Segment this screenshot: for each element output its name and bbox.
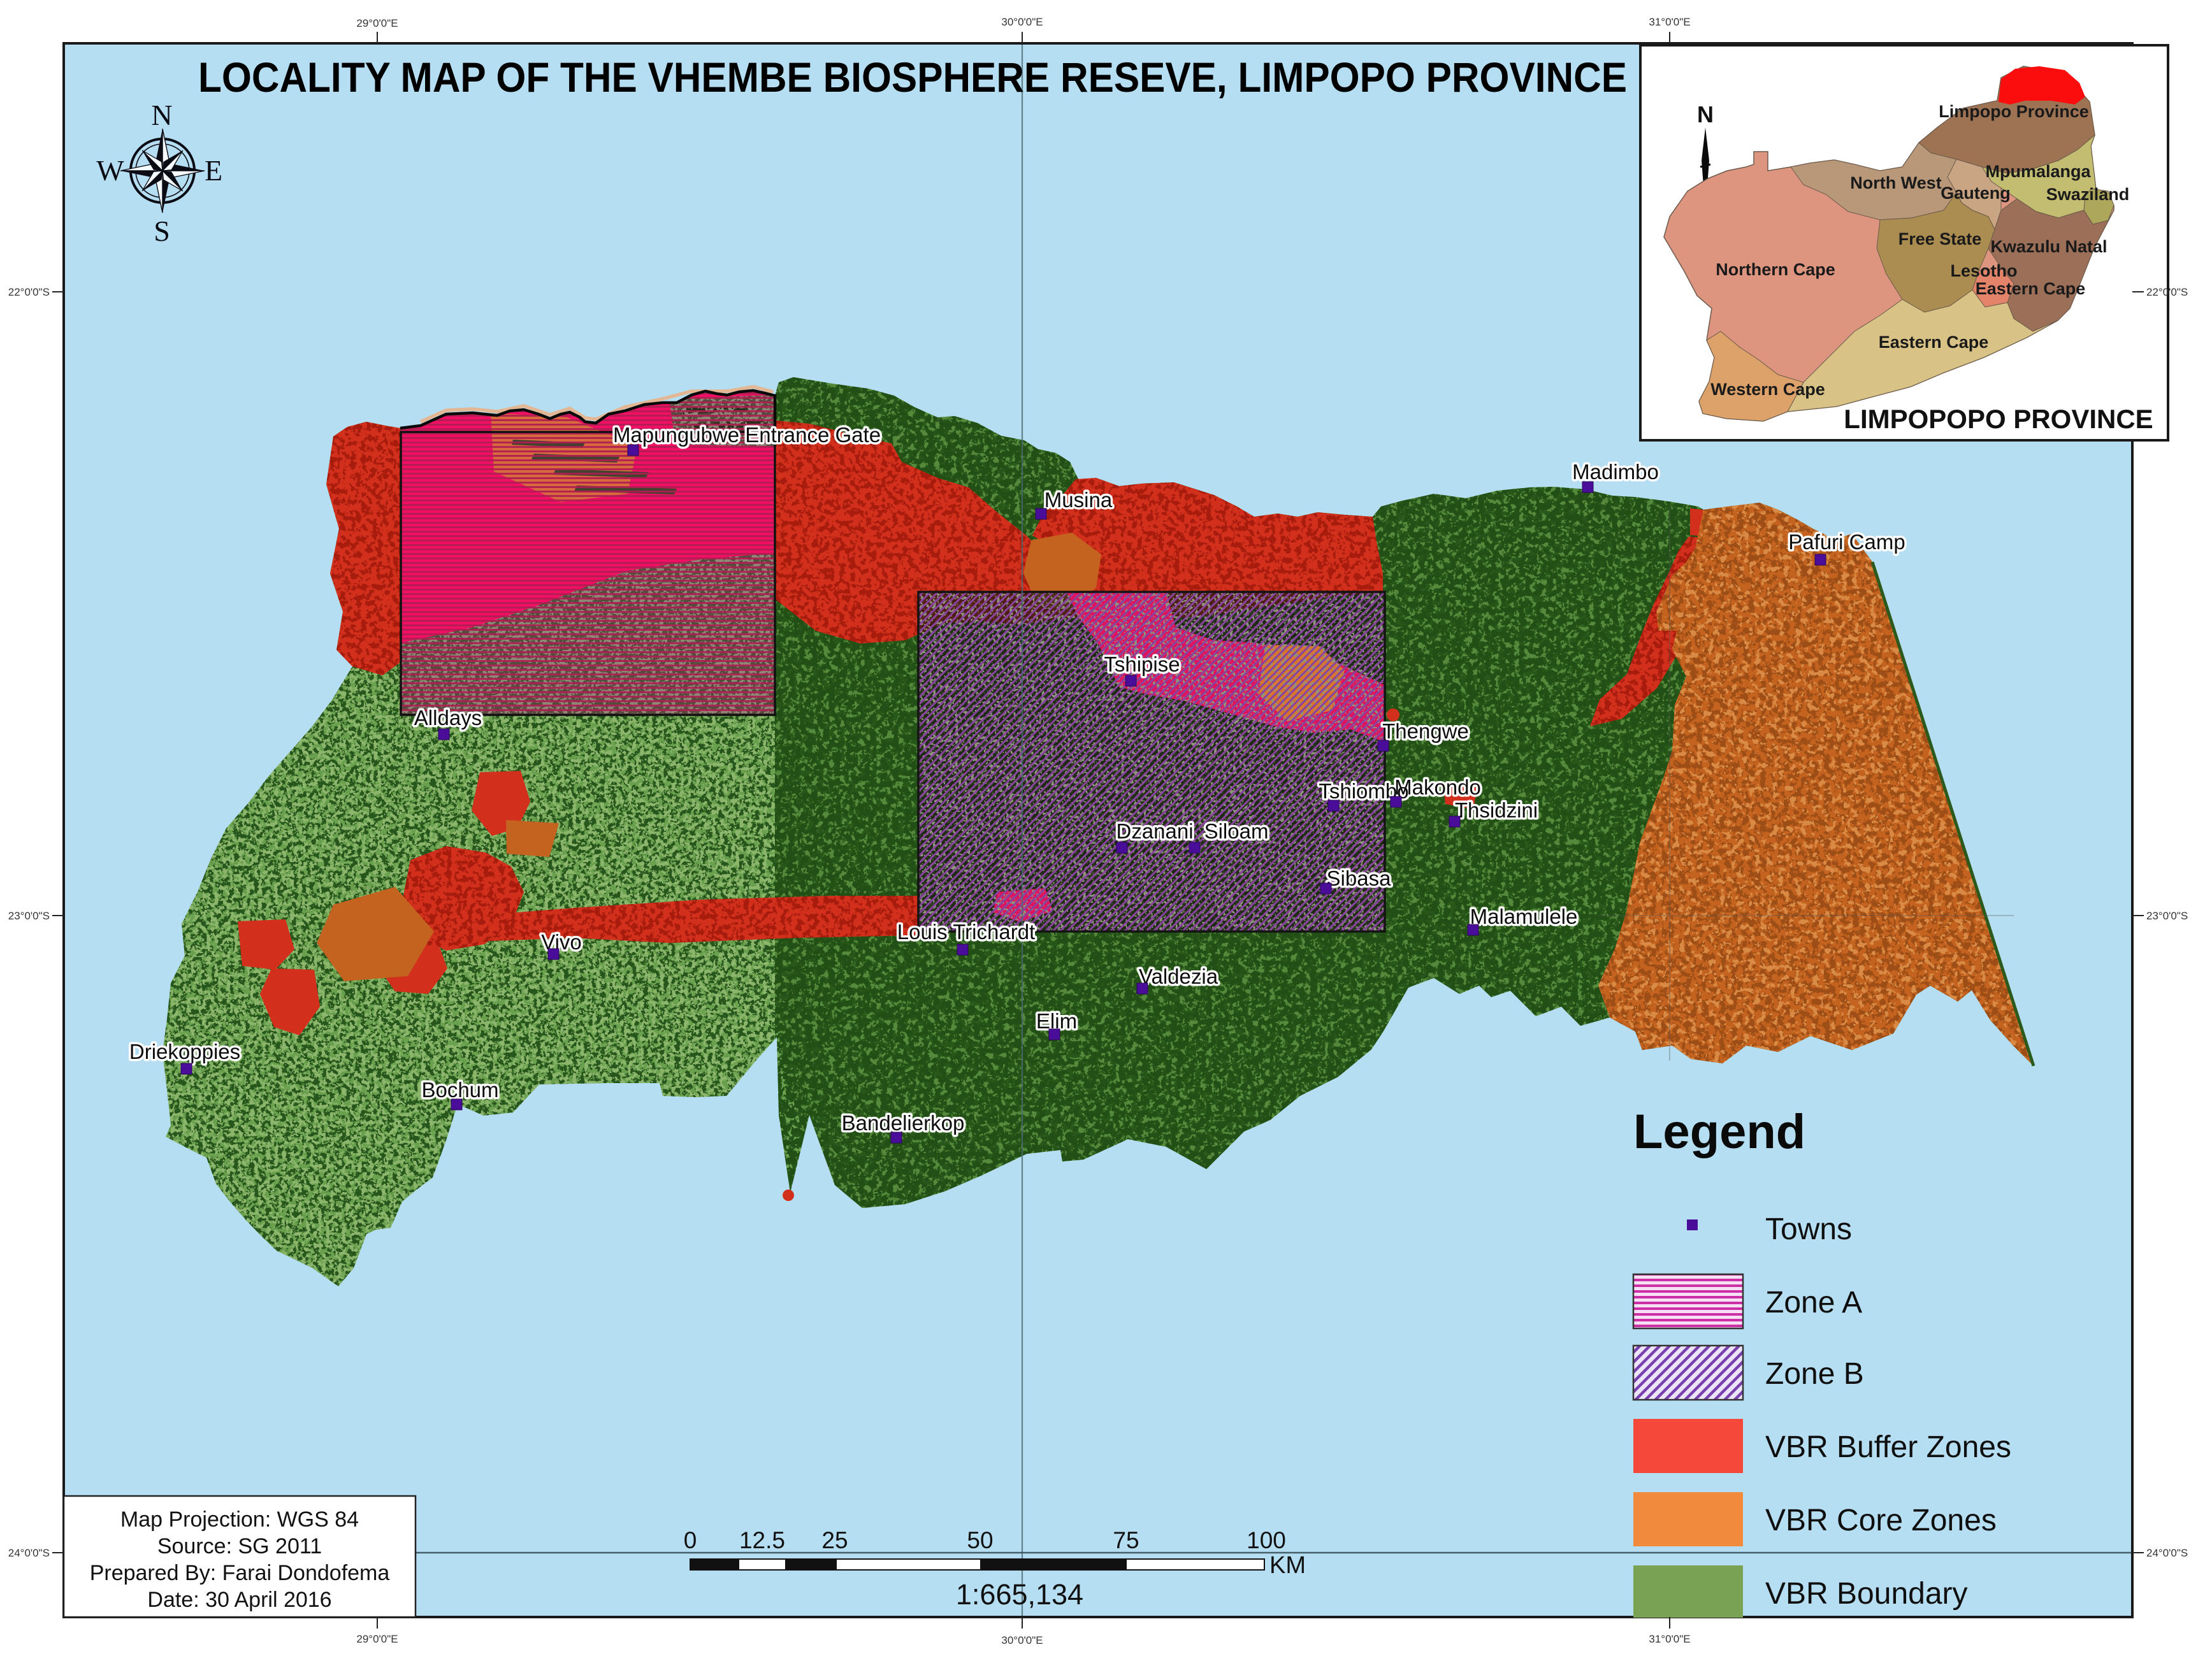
svg-text:Mapungubwe Entrance Gate: Mapungubwe Entrance Gate	[613, 423, 881, 447]
svg-text:31°0'0"E: 31°0'0"E	[1649, 1633, 1690, 1645]
svg-text:VBR Boundary: VBR Boundary	[1765, 1577, 1968, 1611]
svg-text:Date: 30 April 2016: Date: 30 April 2016	[147, 1588, 331, 1612]
svg-text:Bandelierkop: Bandelierkop	[842, 1111, 965, 1135]
svg-text:Musina: Musina	[1045, 488, 1113, 512]
svg-text:Western Cape: Western Cape	[1710, 380, 1825, 399]
svg-text:Source: SG 2011: Source: SG 2011	[157, 1534, 322, 1558]
svg-text:Valdezia: Valdezia	[1139, 965, 1218, 988]
svg-text:Sibasa: Sibasa	[1327, 866, 1392, 890]
svg-text:24°0'0"S: 24°0'0"S	[8, 1547, 50, 1559]
svg-text:E: E	[205, 154, 222, 187]
svg-text:23°0'0"S: 23°0'0"S	[8, 910, 50, 922]
svg-text:Bochum: Bochum	[421, 1078, 498, 1102]
svg-text:Alldays: Alldays	[414, 706, 482, 730]
svg-text:29°0'0"E: 29°0'0"E	[356, 17, 398, 29]
svg-text:Louis Trichardt: Louis Trichardt	[897, 920, 1035, 944]
svg-text:Thsidzini: Thsidzini	[1455, 798, 1538, 822]
svg-text:Free State: Free State	[1898, 229, 1982, 248]
svg-text:W: W	[96, 154, 124, 187]
svg-text:1:665,134: 1:665,134	[956, 1578, 1083, 1611]
svg-text:Pafuri Camp: Pafuri Camp	[1788, 530, 1905, 554]
svg-text:Prepared By: Farai Dondofema: Prepared By: Farai Dondofema	[90, 1561, 390, 1585]
svg-text:LIMPOPOPO PROVINCE: LIMPOPOPO PROVINCE	[1844, 404, 2153, 434]
svg-text:Towns: Towns	[1765, 1212, 1852, 1246]
svg-text:22°0'0"S: 22°0'0"S	[2146, 286, 2188, 298]
svg-text:75: 75	[1113, 1527, 1139, 1553]
svg-text:Mpumalanga: Mpumalanga	[1985, 162, 2091, 181]
svg-text:S: S	[154, 215, 170, 247]
svg-text:100: 100	[1247, 1527, 1286, 1553]
svg-text:Northern Cape: Northern Cape	[1716, 260, 1835, 279]
svg-text:22°0'0"S: 22°0'0"S	[8, 286, 50, 298]
svg-text:Map Projection: WGS 84: Map Projection: WGS 84	[120, 1507, 359, 1532]
svg-text:30°0'0"E: 30°0'0"E	[1001, 16, 1043, 28]
svg-text:23°0'0"S: 23°0'0"S	[2146, 910, 2188, 922]
svg-text:Driekoppies: Driekoppies	[129, 1040, 240, 1063]
svg-text:30°0'0"E: 30°0'0"E	[1001, 1634, 1043, 1646]
svg-text:Legend: Legend	[1633, 1105, 1805, 1159]
svg-text:31°0'0"E: 31°0'0"E	[1649, 16, 1690, 28]
svg-text:Limpopo Province: Limpopo Province	[1939, 102, 2089, 121]
svg-text:LOCALITY MAP OF THE VHEMBE BIO: LOCALITY MAP OF THE VHEMBE BIOSPHERE RES…	[198, 54, 1627, 101]
svg-text:12.5: 12.5	[739, 1527, 785, 1553]
svg-text:Thengwe: Thengwe	[1382, 719, 1469, 743]
svg-text:Kwazulu Natal: Kwazulu Natal	[1990, 237, 2107, 256]
svg-text:Vivo: Vivo	[541, 930, 582, 954]
svg-text:KM: KM	[1269, 1552, 1306, 1579]
svg-text:Eastern Cape: Eastern Cape	[1976, 279, 2086, 298]
svg-text:N: N	[151, 99, 172, 131]
svg-text:Makondo: Makondo	[1394, 775, 1481, 799]
svg-text:Dzanani: Dzanani	[1116, 819, 1193, 843]
svg-text:Gauteng: Gauteng	[1941, 183, 2011, 203]
svg-text:Zone B: Zone B	[1765, 1357, 1864, 1391]
svg-text:N: N	[1697, 101, 1714, 127]
svg-text:Swaziland: Swaziland	[2046, 185, 2130, 204]
svg-text:Lesotho: Lesotho	[1951, 261, 2018, 280]
svg-text:Malamulele: Malamulele	[1470, 905, 1578, 928]
svg-text:25: 25	[821, 1527, 848, 1553]
svg-text:North West: North West	[1850, 173, 1942, 192]
svg-text:50: 50	[967, 1527, 993, 1553]
svg-text:Madimbo: Madimbo	[1572, 460, 1659, 484]
svg-text:VBR Core Zones: VBR Core Zones	[1765, 1504, 1997, 1537]
svg-text:29°0'0"E: 29°0'0"E	[356, 1633, 398, 1645]
svg-text:Siloam: Siloam	[1204, 819, 1269, 843]
svg-text:Zone A: Zone A	[1765, 1286, 1862, 1319]
svg-text:24°0'0"S: 24°0'0"S	[2146, 1547, 2188, 1559]
svg-text:0: 0	[684, 1527, 697, 1553]
svg-text:Eastern Cape: Eastern Cape	[1879, 333, 1989, 352]
svg-text:VBR Buffer Zones: VBR Buffer Zones	[1765, 1430, 2011, 1464]
svg-text:Tshipise: Tshipise	[1104, 652, 1180, 676]
